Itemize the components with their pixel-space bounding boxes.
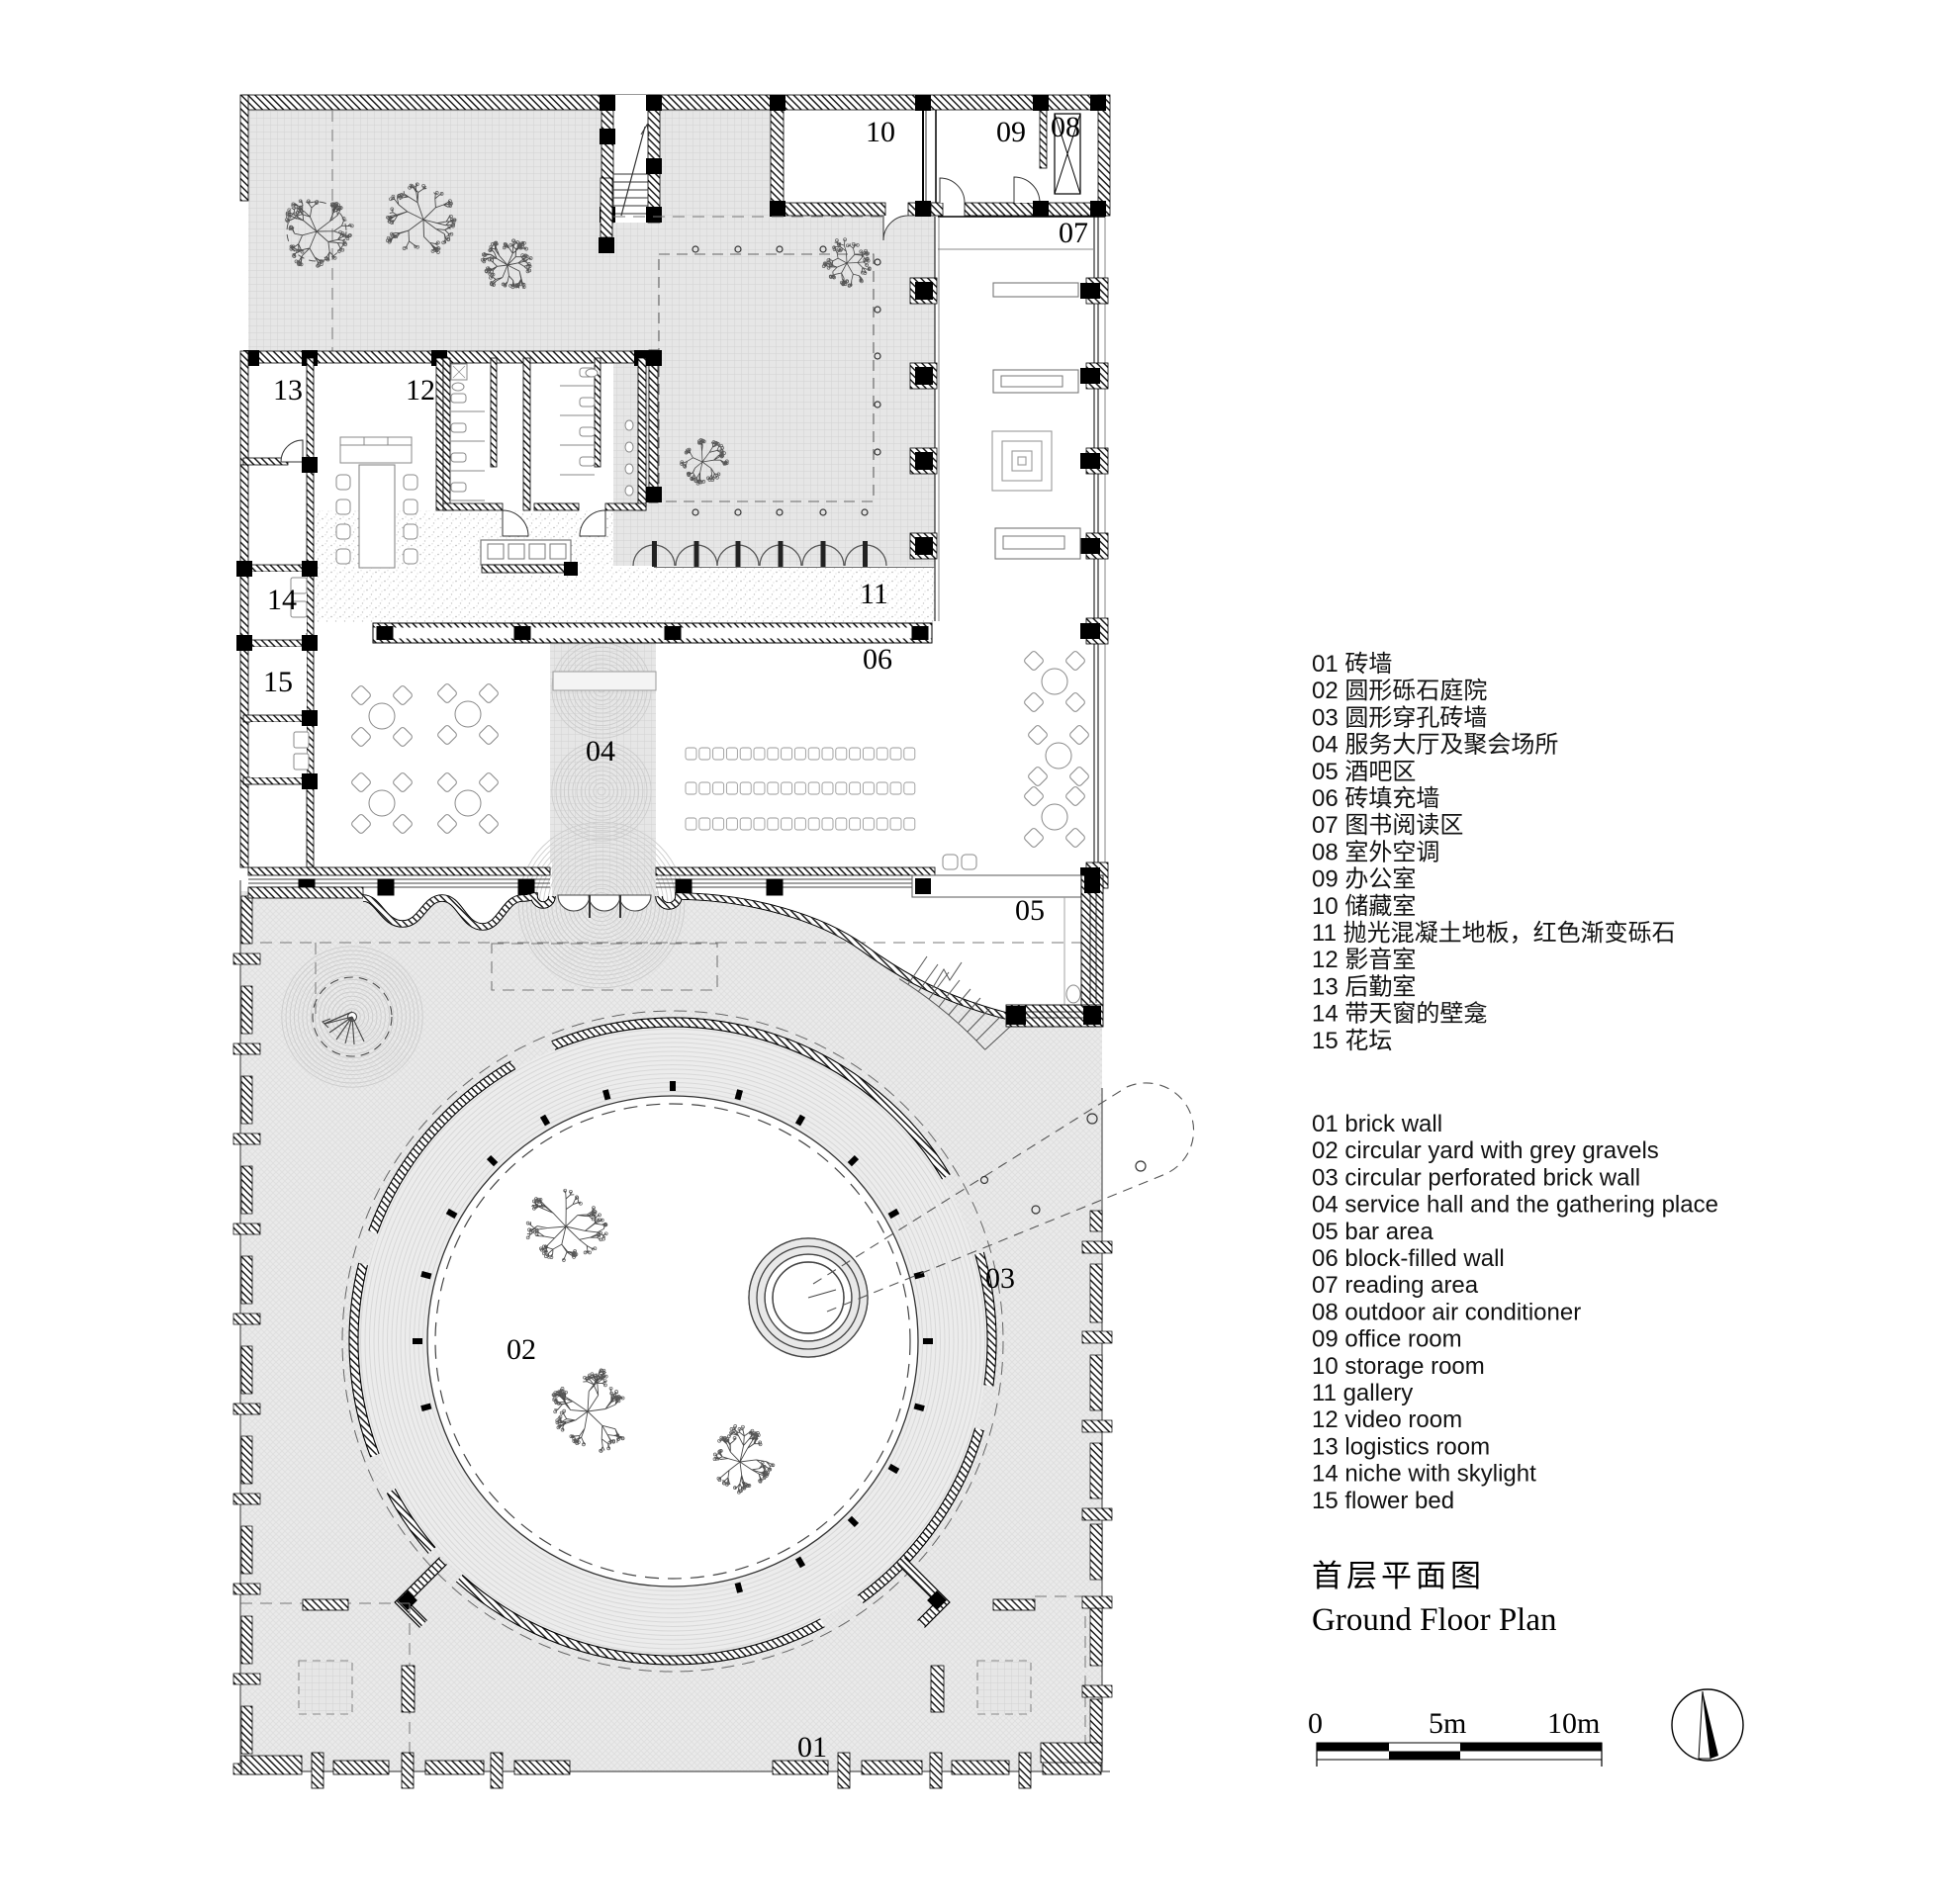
svg-text:02: 02 <box>507 1333 536 1366</box>
svg-text:09 办公室: 09 办公室 <box>1312 866 1416 893</box>
svg-text:0: 0 <box>1308 1707 1323 1740</box>
svg-text:13 logistics room: 13 logistics room <box>1312 1433 1490 1460</box>
svg-text:01 brick wall: 01 brick wall <box>1312 1111 1442 1137</box>
svg-text:02 circular yard with grey gra: 02 circular yard with grey gravels <box>1312 1137 1659 1164</box>
svg-text:08 室外空调: 08 室外空调 <box>1312 839 1439 865</box>
svg-text:06 block-filled wall: 06 block-filled wall <box>1312 1245 1505 1272</box>
svg-text:03: 03 <box>985 1262 1015 1295</box>
svg-text:02 圆形砾石庭院: 02 圆形砾石庭院 <box>1312 678 1487 704</box>
svg-text:12 video room: 12 video room <box>1312 1406 1462 1433</box>
svg-text:10m: 10m <box>1547 1707 1600 1740</box>
svg-text:09: 09 <box>996 116 1026 148</box>
svg-text:06: 06 <box>863 643 892 676</box>
svg-text:11 抛光混凝土地板，红色渐变砾石: 11 抛光混凝土地板，红色渐变砾石 <box>1312 920 1676 947</box>
svg-text:14 niche with skylight: 14 niche with skylight <box>1312 1461 1536 1488</box>
svg-text:07: 07 <box>1059 217 1088 249</box>
svg-text:15: 15 <box>263 666 293 698</box>
svg-text:07 图书阅读区: 07 图书阅读区 <box>1312 812 1463 839</box>
svg-text:09 office room: 09 office room <box>1312 1326 1462 1353</box>
svg-text:13: 13 <box>273 374 303 407</box>
svg-text:08 outdoor air conditioner: 08 outdoor air conditioner <box>1312 1299 1581 1325</box>
svg-text:14 带天窗的壁龛: 14 带天窗的壁龛 <box>1312 1001 1487 1028</box>
svg-text:04 服务大厅及聚会场所: 04 服务大厅及聚会场所 <box>1312 732 1558 759</box>
svg-text:12 影音室: 12 影音室 <box>1312 947 1416 973</box>
svg-text:04 service hall and the gather: 04 service hall and the gathering place <box>1312 1192 1718 1219</box>
svg-text:03 圆形穿孔砖墙: 03 圆形穿孔砖墙 <box>1312 704 1487 731</box>
svg-text:5m: 5m <box>1429 1707 1466 1740</box>
svg-text:05 酒吧区: 05 酒吧区 <box>1312 759 1416 785</box>
svg-text:07 reading area: 07 reading area <box>1312 1272 1479 1299</box>
svg-text:06 砖填充墙: 06 砖填充墙 <box>1312 785 1439 812</box>
svg-text:Ground Floor Plan: Ground Floor Plan <box>1312 1602 1557 1638</box>
svg-text:11 gallery: 11 gallery <box>1312 1380 1413 1406</box>
svg-text:01: 01 <box>797 1731 827 1764</box>
svg-text:10: 10 <box>866 116 895 148</box>
svg-text:首层平面图: 首层平面图 <box>1312 1559 1485 1593</box>
svg-text:03 circular perforated brick w: 03 circular perforated brick wall <box>1312 1164 1640 1191</box>
svg-text:15 花坛: 15 花坛 <box>1312 1028 1392 1054</box>
svg-text:11: 11 <box>860 578 888 610</box>
svg-text:05: 05 <box>1015 894 1045 927</box>
svg-text:05 bar area: 05 bar area <box>1312 1219 1433 1245</box>
svg-text:14: 14 <box>267 584 297 616</box>
svg-text:12: 12 <box>406 374 435 407</box>
svg-text:10 storage room: 10 storage room <box>1312 1353 1485 1380</box>
svg-text:01 砖墙: 01 砖墙 <box>1312 651 1392 678</box>
svg-text:13 后勤室: 13 后勤室 <box>1312 973 1416 1000</box>
svg-text:15 flower bed: 15 flower bed <box>1312 1488 1454 1514</box>
svg-text:04: 04 <box>586 735 615 768</box>
svg-text:08: 08 <box>1051 111 1080 143</box>
svg-text:10 储藏室: 10 储藏室 <box>1312 893 1416 920</box>
